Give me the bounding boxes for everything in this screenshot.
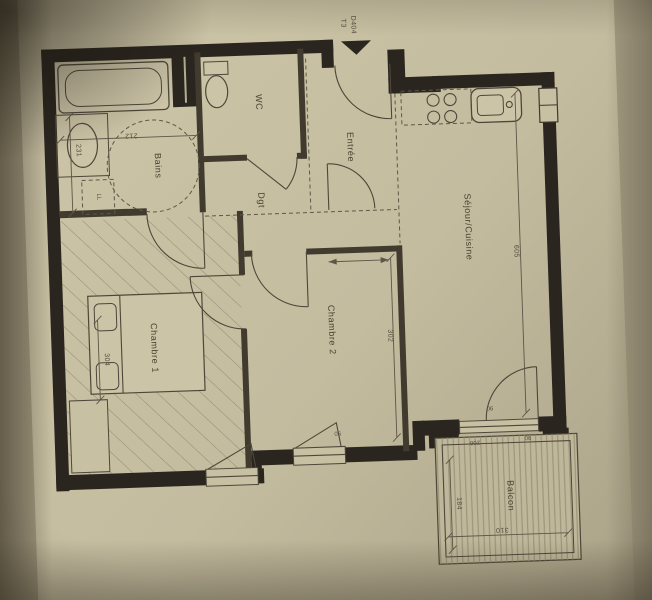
room-label-bains: Bains <box>153 153 164 179</box>
dim-balcon-fixed: 90 <box>524 434 532 440</box>
dim-sejour-depth: 605 <box>512 245 519 258</box>
laundry-label: LL <box>95 193 101 201</box>
wall-segment <box>260 449 294 465</box>
wall-segment <box>422 419 460 435</box>
unit-number-label: D404 <box>349 16 357 35</box>
wall-segment <box>321 40 334 68</box>
dim-chambre1-width: 304 <box>103 353 110 366</box>
room-label-chambre1: Chambre 1 <box>149 323 161 373</box>
dim-bains-width: 212 <box>125 131 138 138</box>
room-label-chambre2: Chambre 2 <box>326 305 338 355</box>
kitchen-sink-icon <box>471 87 522 123</box>
dim-chambre2-window: 90 <box>334 430 342 436</box>
room-label-dgt: Dgt <box>256 192 267 208</box>
dim-balcon-width: 310 <box>496 526 509 533</box>
window-icon <box>539 105 557 106</box>
toilet-icon <box>205 75 228 108</box>
sejour-right-window <box>539 88 558 123</box>
dim-chambre2-depth: 302 <box>386 329 393 342</box>
wall-segment <box>258 468 265 483</box>
bed-icon <box>88 292 205 394</box>
unit-type-label: T3 <box>339 19 346 28</box>
floorplan-photo: T3 D404 Bains WC Entrée Dgt Séjour/Cuisi… <box>0 0 652 600</box>
dim-balcon-depth: 184 <box>455 497 462 510</box>
room-label-entree: Entrée <box>345 132 356 162</box>
dim-balcon-door: 90 <box>486 404 494 410</box>
toilet-icon <box>204 61 228 75</box>
floorplan-svg: T3 D404 Bains WC Entrée Dgt Séjour/Cuisi… <box>0 0 652 600</box>
closet-icon <box>69 400 109 473</box>
room-label-balcon: Balcon <box>505 480 516 511</box>
dim-bains-depth: 231 <box>74 144 81 157</box>
dim-balcon-bay: 206 <box>469 439 480 445</box>
room-label-wc: WC <box>254 94 265 111</box>
